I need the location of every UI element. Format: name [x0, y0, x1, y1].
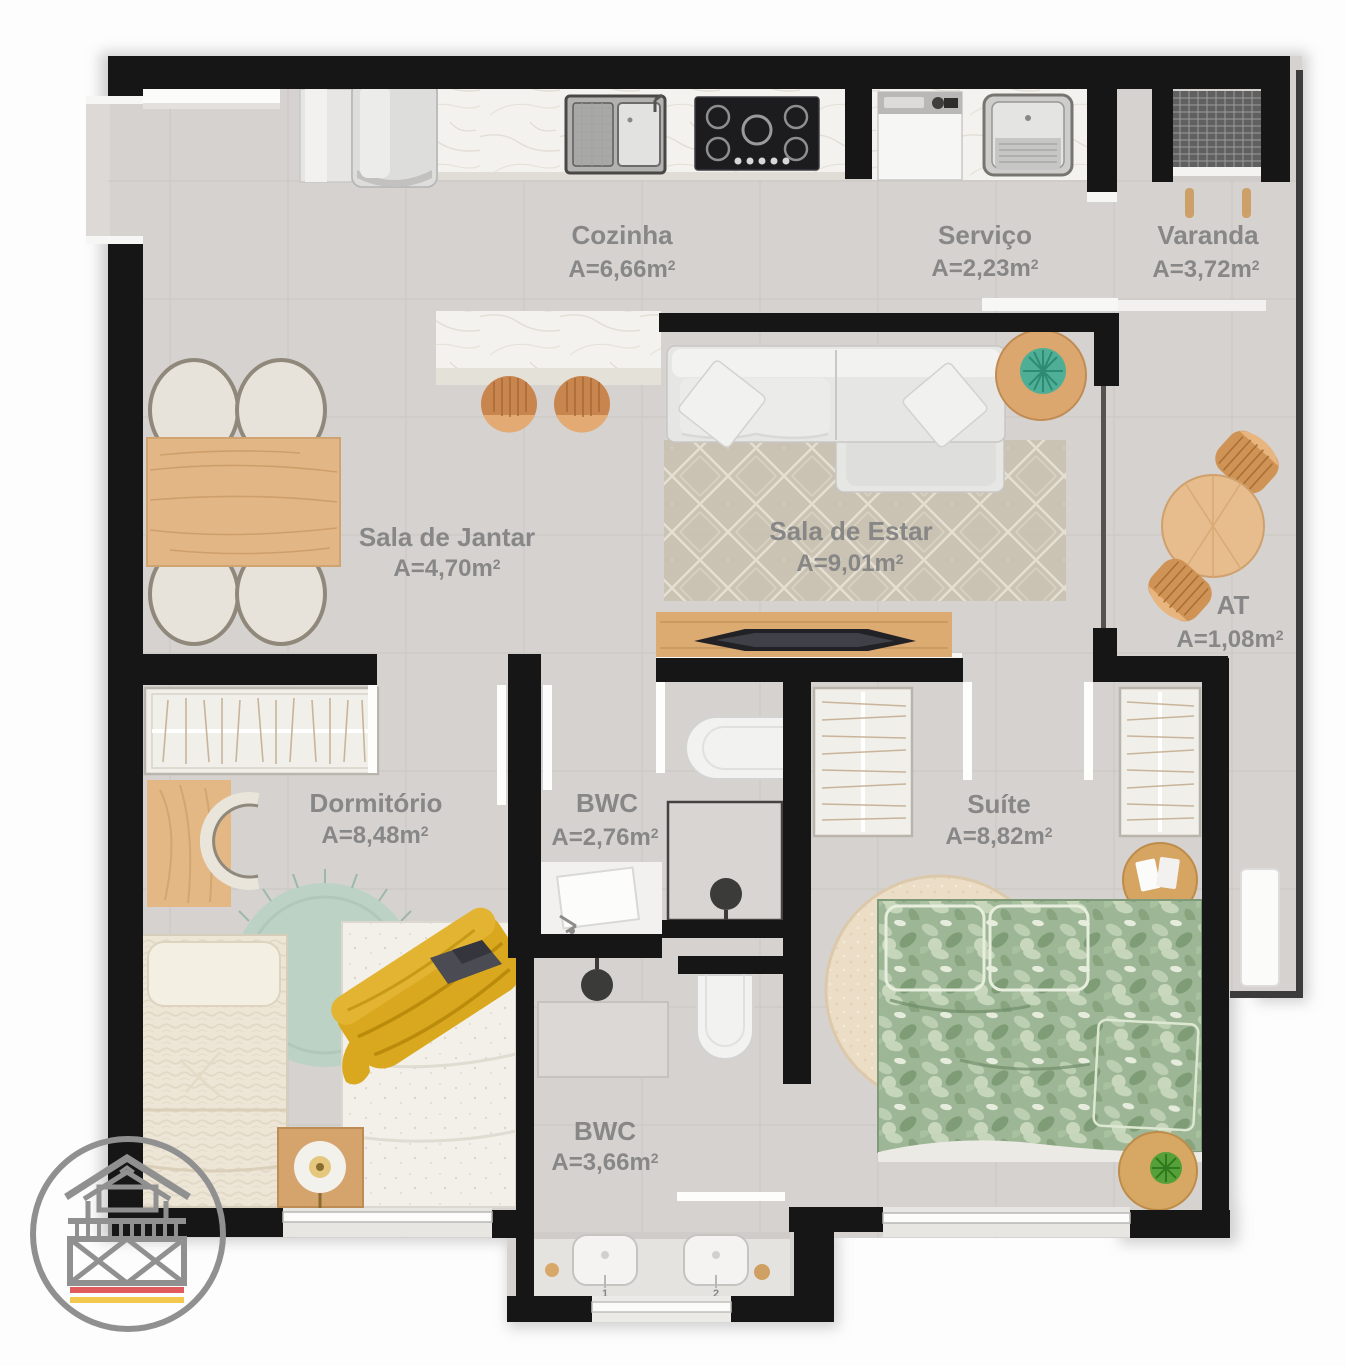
svg-text:BWC: BWC — [576, 788, 638, 818]
svg-text:Sala de Jantar: Sala de Jantar — [359, 522, 535, 552]
svg-text:Suíte: Suíte — [967, 789, 1031, 819]
svg-text:Cozinha: Cozinha — [571, 220, 673, 250]
svg-text:A=4,70m2: A=4,70m2 — [393, 555, 500, 582]
svg-text:Serviço: Serviço — [938, 220, 1032, 250]
svg-text:A=6,66m2: A=6,66m2 — [568, 256, 675, 283]
svg-text:A=2,76m2: A=2,76m2 — [551, 824, 658, 851]
svg-text:A=2,23m2: A=2,23m2 — [931, 255, 1038, 282]
svg-text:A=8,48m2: A=8,48m2 — [321, 822, 428, 849]
svg-text:Sala de Estar: Sala de Estar — [769, 516, 932, 546]
svg-text:A=3,66m2: A=3,66m2 — [551, 1149, 658, 1176]
svg-text:Varanda: Varanda — [1157, 220, 1259, 250]
svg-text:A=1,08m2: A=1,08m2 — [1176, 626, 1283, 653]
svg-text:Dormitório: Dormitório — [310, 788, 443, 818]
svg-text:A=9,01m2: A=9,01m2 — [796, 550, 903, 577]
svg-text:A=3,72m2: A=3,72m2 — [1152, 256, 1259, 283]
svg-text:BWC: BWC — [574, 1116, 636, 1146]
svg-text:AT: AT — [1217, 590, 1250, 620]
svg-text:A=8,82m2: A=8,82m2 — [945, 823, 1052, 850]
